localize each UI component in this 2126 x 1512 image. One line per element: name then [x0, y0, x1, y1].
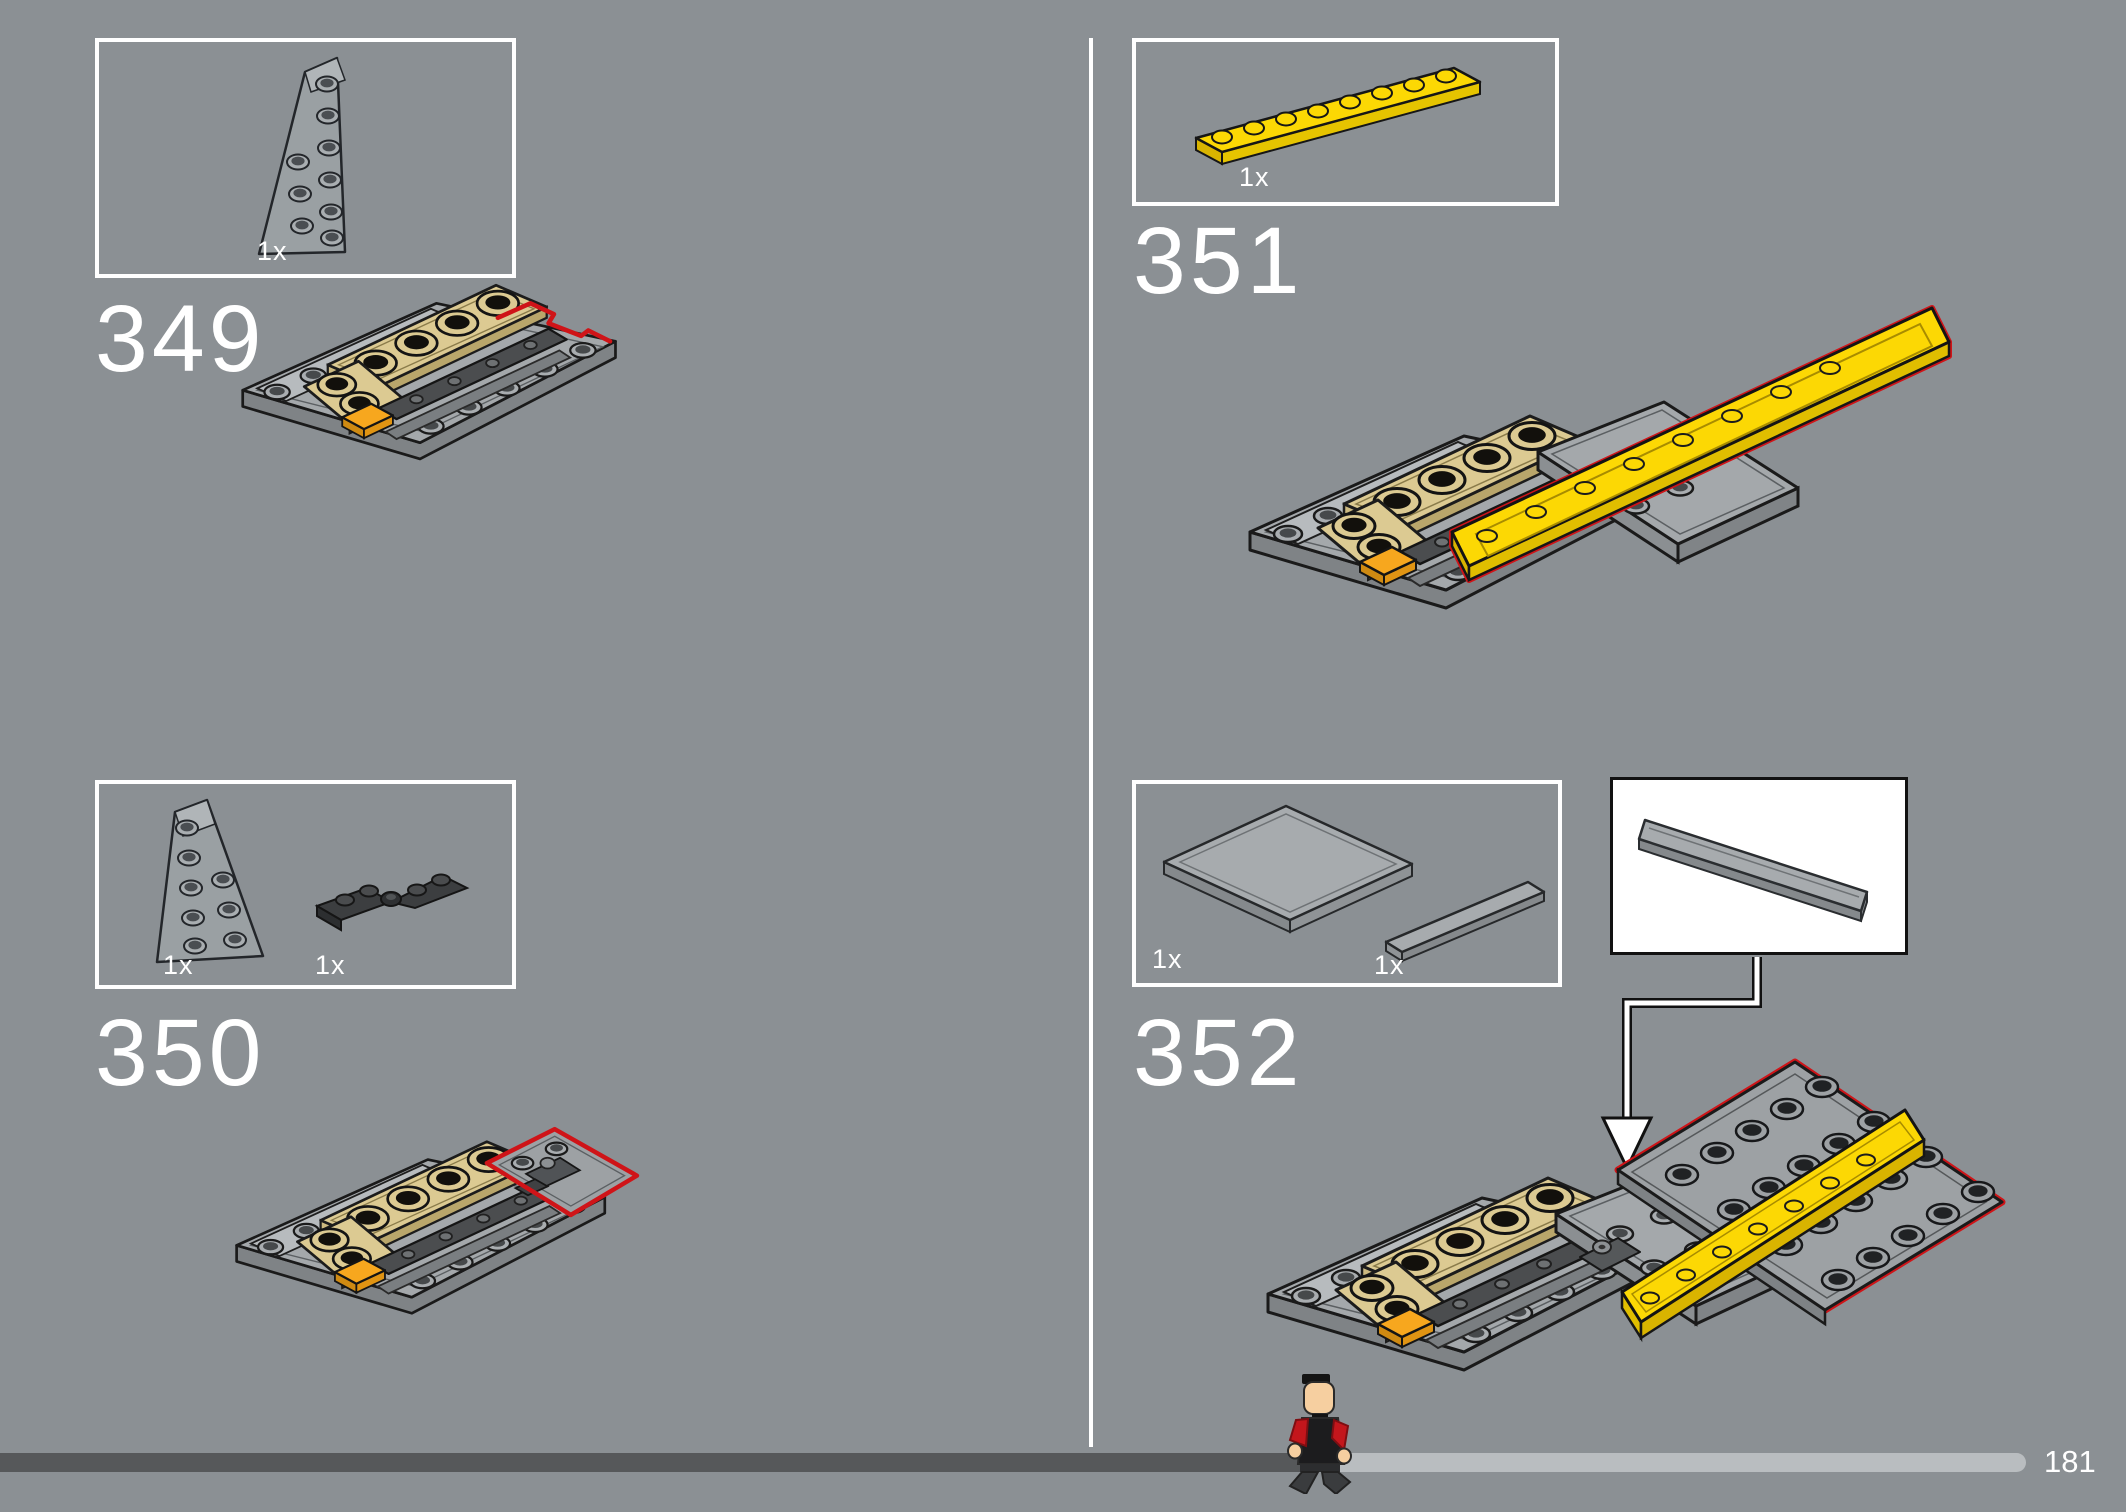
assembly-352 [1250, 1052, 2015, 1377]
assembly-350 [225, 1120, 645, 1326]
part-yellow-plate [1136, 42, 1555, 202]
parts-350 [99, 784, 512, 985]
page-number: 181 [2044, 1444, 2096, 1480]
progress-fill [0, 1453, 1317, 1472]
part-quantity: 1x [315, 950, 346, 981]
callout-tile-1x6 [1613, 780, 1905, 952]
callout-box-tile [1610, 777, 1908, 955]
progress-bar [0, 1453, 2026, 1472]
parts-box-350: 1x 1x [95, 780, 516, 989]
step-number-350: 350 [95, 1006, 266, 1101]
assembly-349 [235, 278, 625, 468]
part-quantity: 1x [1152, 944, 1183, 975]
part-quantity: 1x [1374, 950, 1405, 981]
part-quantity: 1x [257, 236, 288, 267]
part-quantity: 1x [163, 950, 194, 981]
instruction-page: 1x 349 1x 1x 350 [0, 0, 2126, 1512]
parts-box-352: 1x 1x [1132, 780, 1562, 987]
column-divider [1089, 38, 1093, 1447]
assembly-351 [1232, 290, 1977, 620]
part-quantity: 1x [1239, 162, 1270, 193]
parts-box-349: 1x [95, 38, 516, 278]
progress-minifigure [1286, 1372, 1358, 1494]
parts-box-351: 1x [1132, 38, 1559, 206]
part-wedge-plate-left [99, 42, 512, 274]
parts-352 [1136, 784, 1558, 983]
